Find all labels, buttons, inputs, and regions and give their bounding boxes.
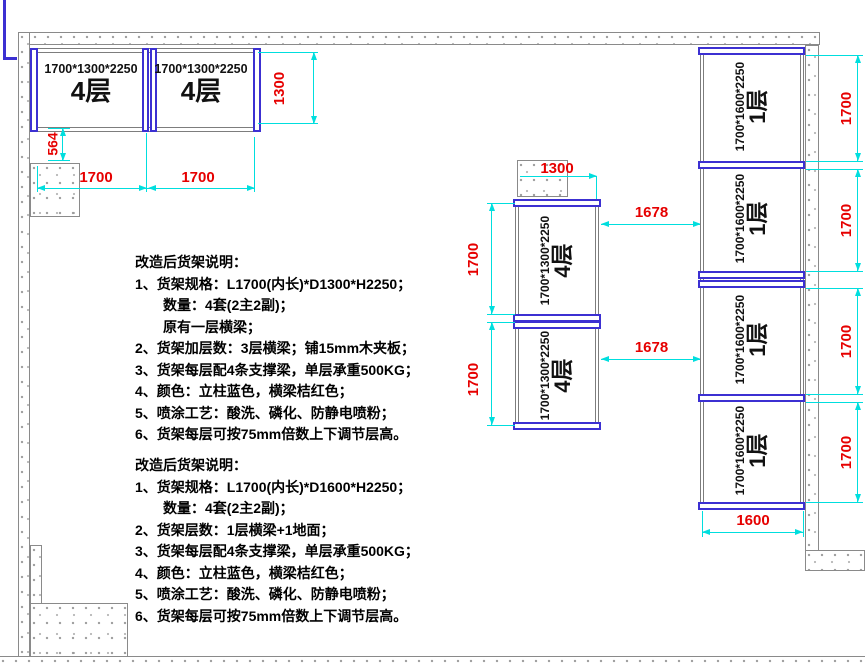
notes-line: 1、货架规格：L1700(内长)*D1600*H2250；: [135, 477, 419, 499]
dim-line: [520, 176, 597, 177]
wall-right-bottom: [805, 550, 865, 571]
dim-arrow: [601, 356, 609, 362]
dim-ext-line: [254, 137, 255, 192]
dim-arrow: [148, 185, 156, 191]
rack-cell: 1700*1300*2250 4层: [516, 329, 597, 422]
dim-label-wrap: 1300: [270, 56, 290, 120]
dim-label-mid-height-1: 1700: [466, 242, 483, 275]
rack-post: [30, 48, 38, 132]
dim-arrow: [489, 417, 495, 425]
dim-label-mid-col: 1300: [535, 160, 579, 177]
dim-arrow: [855, 55, 861, 63]
dim-label-aisle-1: 1678: [614, 204, 689, 221]
dim-tick: [258, 52, 318, 53]
dim-label-right-height-4: 1700: [839, 435, 856, 468]
dim-tick: [806, 502, 863, 503]
rack-cell-text: 1700*1600*2250 1层: [734, 295, 769, 384]
rack-layers-label: 1层: [747, 174, 769, 263]
dim-tick: [487, 314, 515, 315]
notes-line: 3、货架每层配4条支撑梁，单层承重500KG；: [135, 360, 419, 382]
rack-cell-text: 1700*1300*2250 4层: [539, 216, 574, 305]
notes-line: 5、喷涂工艺：酸洗、磷化、防静电喷粉；: [135, 403, 419, 425]
wall-right: [805, 45, 819, 553]
rack-layers-label: 1层: [747, 406, 769, 495]
dim-arrow: [311, 52, 317, 60]
dim-tick: [806, 161, 863, 162]
dim-tick: [806, 394, 863, 395]
dim-arrow: [311, 116, 317, 124]
rack-cell-text: 1700*1600*2250 1层: [734, 174, 769, 263]
dim-ext-line: [146, 133, 147, 192]
dim-arrow: [855, 153, 861, 161]
dim-arrow: [855, 386, 861, 394]
dim-label-wrap: 1700: [838, 311, 856, 371]
dim-arrow: [855, 169, 861, 177]
dim-label-tl-width-1: 1700: [66, 169, 126, 186]
rack-layers-label: 1层: [747, 62, 769, 151]
dim-line: [601, 224, 701, 225]
dim-line: [857, 402, 858, 502]
dim-arrow: [702, 529, 710, 535]
dim-arrow: [855, 288, 861, 296]
dim-line: [601, 359, 701, 360]
dim-label-right-width: 1600: [724, 512, 782, 529]
notes-title: 改造后货架说明：: [135, 252, 419, 274]
wall-top: [18, 32, 820, 45]
notes-line: 2、货架层数：1层横梁+1地面；: [135, 520, 419, 542]
notes-line: 1、货架规格：L1700(内长)*D1300*H2250；: [135, 274, 419, 296]
notes-line: 3、货架每层配4条支撑梁，单层承重500KG；: [135, 541, 419, 563]
notes-line: 数量：4套(2主2副)；: [135, 295, 419, 317]
dim-label-right-height-1: 1700: [839, 91, 856, 124]
dim-arrow: [855, 402, 861, 410]
rack-cell-text: 1700*1300*2250 4层: [539, 331, 574, 420]
notes-line: 原有一层横梁；: [135, 317, 419, 339]
notes-line: 6、货架每层可按75mm倍数上下调节层高。: [135, 606, 419, 628]
dim-label-tl-depth: 1300: [272, 71, 289, 104]
dim-label-wrap: 1700: [464, 348, 484, 410]
dim-label-tl-gap: 564: [45, 132, 61, 155]
dim-arrow: [489, 322, 495, 330]
dim-arrow: [855, 263, 861, 271]
rack-post: [253, 48, 261, 132]
dim-ext-line: [596, 176, 597, 200]
rack-post: [142, 48, 149, 132]
notes-line: 数量：4套(2主2副)；: [135, 498, 419, 520]
dim-label-wrap: 564: [44, 126, 62, 162]
rack-beam: [698, 394, 805, 402]
dim-line: [702, 532, 803, 533]
rack-cell: 1700*1300*2250 4层: [516, 207, 597, 314]
rack-cell: 1700*1600*2250 1层: [704, 169, 799, 269]
notes-block-1: 改造后货架说明： 1、货架规格：L1700(内长)*D1300*H2250； 数…: [135, 252, 419, 446]
rack-beam: [513, 199, 601, 207]
rack-cell: 1700*1300*2250 4层: [42, 62, 140, 104]
dim-arrow: [855, 494, 861, 502]
dim-arrow: [489, 203, 495, 211]
rack-cell-text: 1700*1600*2250 1层: [734, 406, 769, 495]
rack-cell-text: 1700*1600*2250 1层: [734, 62, 769, 151]
dim-label-aisle-2: 1678: [614, 339, 689, 356]
notes-line: 4、颜色：立柱蓝色，横梁桔红色；: [135, 381, 419, 403]
notes-line: 6、货架每层可按75mm倍数上下调节层高。: [135, 424, 419, 446]
notes-title: 改造后货架说明：: [135, 455, 419, 477]
dim-arrow: [795, 529, 803, 535]
rack-beam: [513, 422, 601, 430]
rack-layers-label: 4层: [552, 216, 574, 305]
rack-cell: 1700*1600*2250 1层: [704, 402, 799, 500]
dim-label-right-height-3: 1700: [839, 324, 856, 357]
dim-tick: [806, 271, 863, 272]
dim-arrow: [247, 185, 255, 191]
blue-frame-corner: [3, 0, 17, 60]
dim-arrow: [489, 306, 495, 314]
dim-label-wrap: 1700: [464, 228, 484, 290]
rack-cell: 1700*1600*2250 1层: [704, 288, 799, 392]
wall-left: [18, 32, 30, 666]
dim-arrow: [37, 185, 45, 191]
dim-tick: [258, 123, 318, 124]
dim-line: [491, 322, 492, 425]
rack-layers-label: 1层: [747, 295, 769, 384]
dim-line: [857, 169, 858, 271]
block-bottom-left: [30, 603, 128, 662]
dim-arrow: [601, 221, 609, 227]
floor-plan-canvas: 1700*1300*2250 4层 1700*1300*2250 4层 1300…: [0, 0, 865, 666]
rack-beam: [513, 321, 601, 329]
dim-label-mid-height-2: 1700: [466, 362, 483, 395]
dim-line: [857, 288, 858, 394]
rack-beam: [698, 271, 805, 279]
dim-line: [313, 52, 314, 124]
dim-label-wrap: 1700: [838, 190, 856, 250]
wall-stub-bottom-left: [30, 545, 42, 604]
rack-cell: 1700*1300*2250 4层: [152, 62, 250, 104]
dim-tick: [487, 425, 515, 426]
rack-spec-label: 1700*1300*2250: [42, 62, 140, 76]
dim-arrow: [139, 185, 147, 191]
notes-block-2: 改造后货架说明： 1、货架规格：L1700(内长)*D1600*H2250； 数…: [135, 455, 419, 627]
rack-beam: [698, 47, 805, 55]
rack-beam: [698, 161, 805, 169]
notes-line: 2、货架加层数：3层横梁；铺15mm木夹板；: [135, 338, 419, 360]
dim-ext-line: [803, 511, 804, 537]
dim-label-right-height-2: 1700: [839, 203, 856, 236]
dim-line: [857, 55, 858, 161]
dim-label-wrap: 1700: [838, 78, 856, 138]
rack-layers-label: 4层: [152, 78, 250, 104]
rack-cell: 1700*1600*2250 1层: [704, 55, 799, 159]
rack-layers-label: 4层: [552, 331, 574, 420]
rack-layers-label: 4层: [42, 78, 140, 104]
wall-bottom-edge: [0, 656, 865, 666]
notes-line: 4、颜色：立柱蓝色，横梁桔红色；: [135, 563, 419, 585]
rack-beam: [698, 280, 805, 288]
rack-spec-label: 1700*1300*2250: [152, 62, 250, 76]
dim-label-tl-width-2: 1700: [168, 169, 228, 186]
dim-line: [491, 203, 492, 314]
notes-line: 5、喷涂工艺：酸洗、磷化、防静电喷粉；: [135, 584, 419, 606]
dim-label-wrap: 1700: [838, 422, 856, 482]
rack-beam: [698, 502, 805, 510]
